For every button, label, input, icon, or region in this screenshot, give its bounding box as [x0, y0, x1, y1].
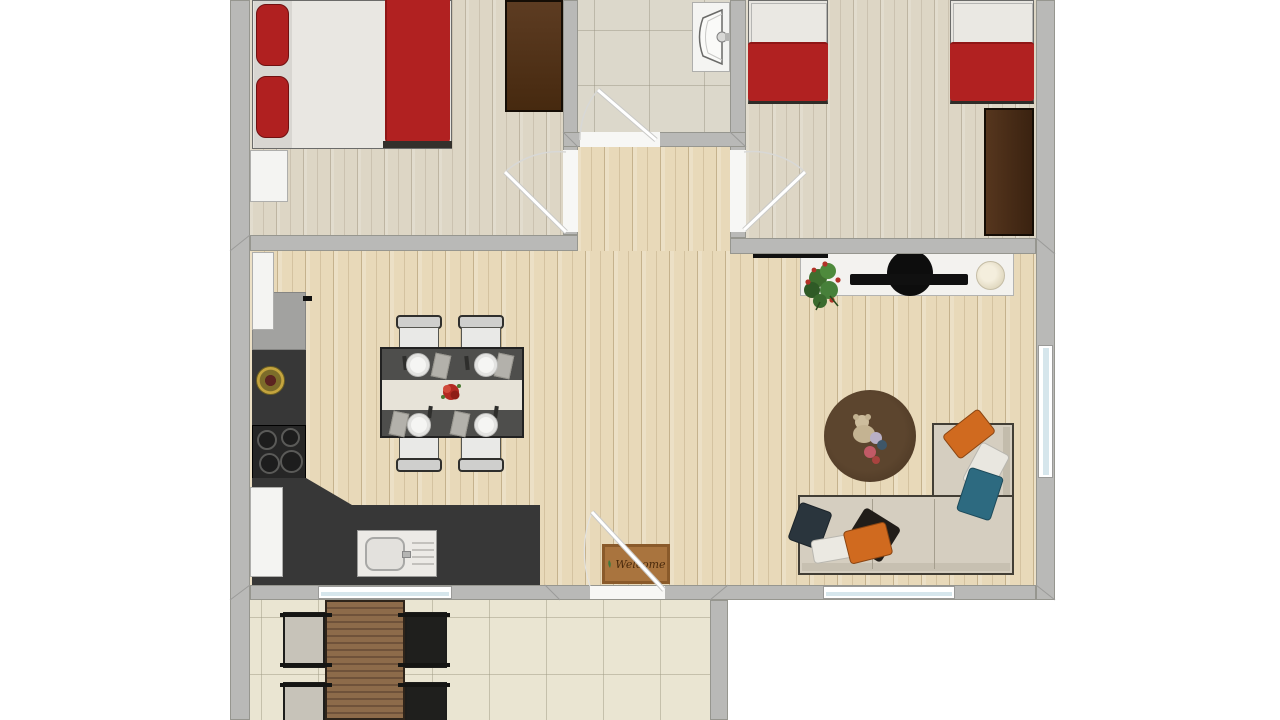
wall-miters: [230, 132, 1055, 600]
floor-plan: Welcome: [0, 0, 1280, 720]
door-swings-overlay: [0, 0, 1280, 720]
